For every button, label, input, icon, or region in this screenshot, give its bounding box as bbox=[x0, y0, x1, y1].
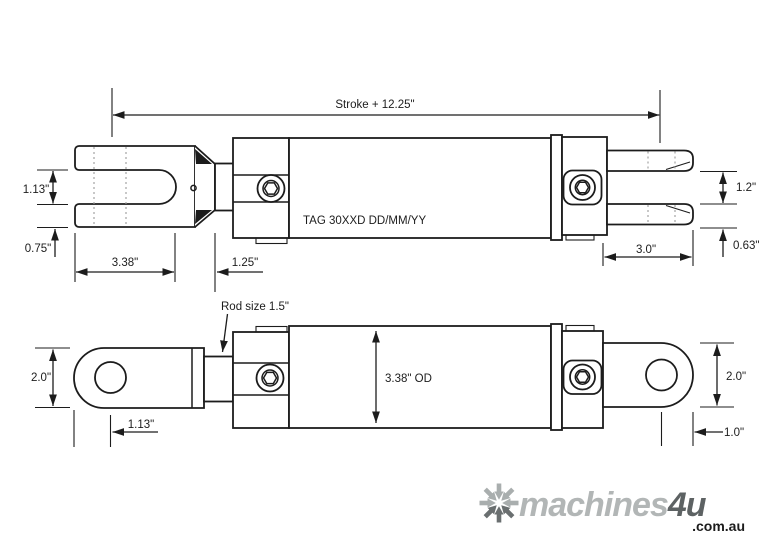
dim-prong-thickness: 0.63" bbox=[700, 228, 759, 257]
asterisk-arrows-icon bbox=[480, 484, 519, 523]
dim-eye-pin-offset-left: 1.13" bbox=[74, 410, 158, 447]
dim-barrel-od-label: 3.38" OD bbox=[385, 373, 432, 385]
dim-slot-width: 1.13" bbox=[23, 170, 68, 205]
clevis-prong-upper bbox=[607, 151, 693, 172]
dim-eye-height-right-label: 2.0" bbox=[726, 371, 746, 383]
logo-name: machines bbox=[519, 486, 668, 524]
dim-rod-size-label: Rod size 1.5" bbox=[221, 301, 289, 313]
dim-slot-width-label: 1.13" bbox=[23, 184, 49, 196]
dim-eye-pin-offset-right: 1.0" bbox=[662, 412, 745, 446]
dim-eye-height-right: 2.0" bbox=[700, 343, 746, 407]
logo-tld: .com.au bbox=[692, 518, 745, 534]
drawing-canvas: TAG 30XXD DD/MM/YY Stroke + 12.25" 1.13" bbox=[0, 0, 780, 550]
dim-slot-depth: 3.38" bbox=[75, 233, 175, 282]
dim-stroke-label: Stroke + 12.25" bbox=[335, 99, 414, 111]
dim-rod-clearance-label: 1.25" bbox=[232, 257, 258, 269]
dim-eye-height-left: 2.0" bbox=[31, 348, 70, 408]
clevis-fork bbox=[75, 146, 195, 227]
dim-prong-gap: 1.2" bbox=[700, 172, 756, 205]
clevis-prong-lower bbox=[607, 204, 693, 225]
machines4u-logo: machines4u .com.au bbox=[480, 484, 746, 535]
eye-end-left bbox=[74, 348, 204, 408]
bottom-view bbox=[74, 324, 693, 430]
hydraulic-port bbox=[257, 365, 284, 392]
dim-prong-length: 3.0" bbox=[603, 230, 693, 266]
piston-rod bbox=[204, 357, 233, 402]
hydraulic-port bbox=[570, 365, 595, 390]
dim-eye-height-left-label: 2.0" bbox=[31, 372, 51, 384]
hydraulic-port bbox=[570, 175, 595, 200]
top-view: TAG 30XXD DD/MM/YY bbox=[75, 135, 693, 244]
eye-pin-hole-right bbox=[646, 360, 677, 391]
dim-prong-thickness-label: 0.63" bbox=[733, 240, 759, 252]
dim-tine-thickness: 0.75" bbox=[25, 228, 68, 258]
dim-stroke: Stroke + 12.25" bbox=[112, 88, 660, 143]
dim-prong-length-label: 3.0" bbox=[636, 244, 656, 256]
eye-pin-hole-left bbox=[95, 362, 126, 393]
gland-collar bbox=[551, 135, 562, 240]
dim-eye-pin-offset-left-label: 1.13" bbox=[128, 419, 154, 431]
tag-label: TAG 30XXD DD/MM/YY bbox=[303, 215, 426, 227]
gland-collar bbox=[551, 324, 562, 430]
dim-tine-thickness-label: 0.75" bbox=[25, 243, 51, 255]
hydraulic-cylinder-drawing: TAG 30XXD DD/MM/YY Stroke + 12.25" 1.13" bbox=[0, 0, 780, 550]
hydraulic-port bbox=[258, 175, 285, 202]
dim-slot-depth-label: 3.38" bbox=[112, 257, 138, 269]
piston-rod bbox=[215, 164, 235, 211]
logo-wordmark: machines4u bbox=[519, 486, 707, 524]
dim-eye-pin-offset-right-label: 1.0" bbox=[724, 427, 744, 439]
dim-prong-gap-label: 1.2" bbox=[736, 182, 756, 194]
